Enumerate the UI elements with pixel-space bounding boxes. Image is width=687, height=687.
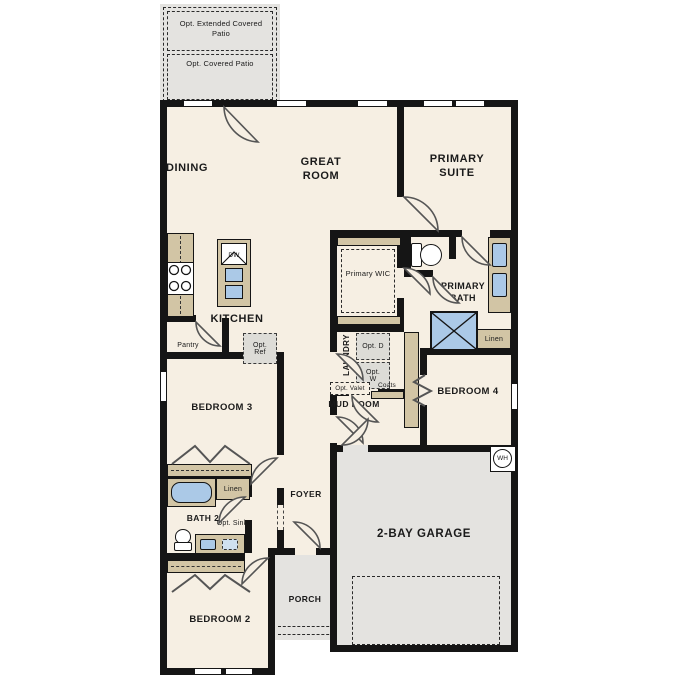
door-arc [433, 277, 459, 303]
door-arc [404, 197, 438, 231]
floor-plan: Opt. Extended Covered Patio Opt. Covered… [0, 0, 687, 687]
burner [170, 282, 179, 291]
door-arc [462, 237, 490, 265]
bifold-door [172, 575, 250, 592]
door-arc [219, 497, 245, 523]
door-arc [294, 522, 320, 548]
door-arc [352, 396, 378, 422]
bifold-door [172, 446, 250, 464]
burner [170, 266, 179, 275]
door-swing-overlay [0, 0, 687, 687]
door-arc [242, 558, 268, 584]
door-arc [196, 322, 220, 346]
burner [182, 266, 191, 275]
door-arc [224, 107, 258, 142]
burner [182, 282, 191, 291]
door-arc [251, 458, 277, 484]
bifold-door [414, 375, 431, 406]
door-arc [337, 354, 363, 380]
door-arc [404, 268, 430, 294]
dw-mark [222, 252, 246, 264]
